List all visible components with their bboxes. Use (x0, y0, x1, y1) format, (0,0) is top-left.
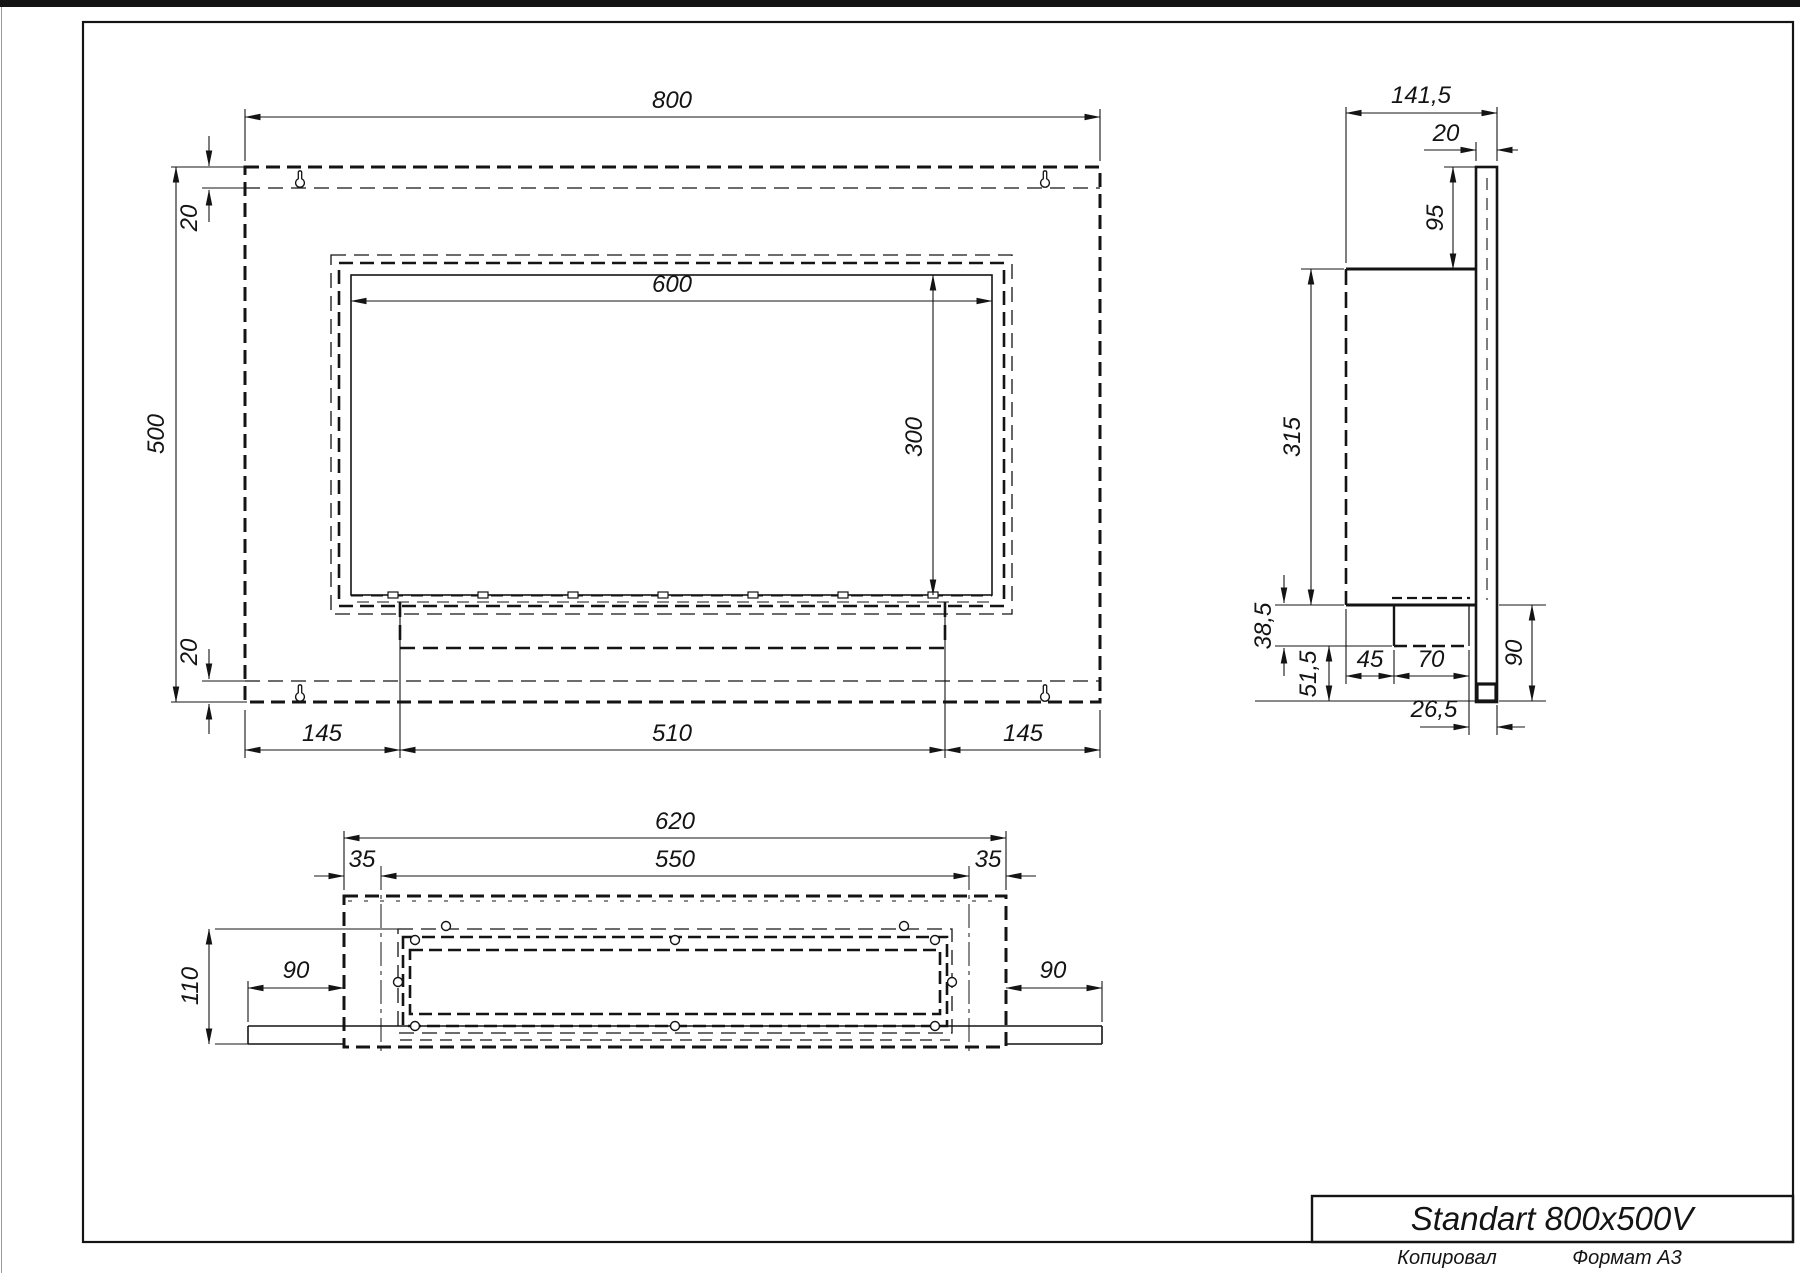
front-opening (351, 275, 992, 595)
dim-bottom-depth: 110 (177, 966, 204, 1005)
mounting-hole (671, 1022, 680, 1031)
dim-body-height: 315 (1279, 416, 1306, 457)
burner-slot (351, 592, 992, 602)
dim-back-offset: 26,5 (1410, 696, 1458, 723)
dim-front-offset: 45 (1357, 646, 1384, 673)
mounting-hole (394, 978, 403, 987)
dim-inset-right: 35 (975, 846, 1002, 873)
flange-left (248, 1026, 344, 1044)
footer-format-label: Формат А3 (1572, 1247, 1681, 1269)
dim-slot-width: 510 (652, 720, 693, 747)
mounting-hole (900, 922, 909, 931)
drawing-sheet: 800 500 20 20 600 300 145 510 145 (0, 0, 1800, 1273)
front-backplate-outline (245, 167, 1100, 702)
keyhole-icon (296, 685, 305, 701)
page-border (0, 0, 1800, 1273)
dim-side-depth: 141,5 (1391, 82, 1452, 109)
dim-front-height: 500 (143, 413, 170, 454)
title-block: Standart 800x500V (1312, 1196, 1793, 1242)
dim-opening-height: 300 (901, 416, 928, 457)
bottom-dimensions: 620 550 35 35 110 90 90 (177, 808, 1102, 1044)
mounting-hole (931, 936, 940, 945)
drawing-frame (83, 22, 1793, 1242)
dim-front-top-offset: 20 (176, 204, 203, 232)
burner-box (1394, 605, 1469, 646)
dim-under-body: 38,5 (1250, 602, 1277, 649)
flange-right (1006, 1026, 1102, 1044)
side-view: 141,5 20 95 315 38,5 51,5 45 (1250, 82, 1546, 735)
mounting-hole (948, 978, 957, 987)
dim-top-to-opening: 95 (1422, 204, 1449, 231)
dim-bottom-inner-width: 550 (655, 846, 696, 873)
sheet-footer: Копировал Формат А3 (1397, 1247, 1681, 1269)
dim-lower-gap: 51,5 (1295, 650, 1322, 697)
plate-foot (1477, 684, 1496, 701)
dim-plate-drop: 90 (1501, 639, 1528, 666)
dim-plate-thickness: 20 (1432, 120, 1460, 147)
mounting-hole (442, 922, 451, 931)
dim-front-bottom-offset: 20 (176, 638, 203, 666)
mounting-hole (411, 936, 420, 945)
model-name: Standart 800x500V (1411, 1200, 1697, 1237)
side-dimensions: 141,5 20 95 315 38,5 51,5 45 (1250, 82, 1546, 735)
bottom-view: 620 550 35 35 110 90 90 (177, 808, 1102, 1054)
keyhole-icon (1041, 171, 1050, 187)
mounting-hole (931, 1022, 940, 1031)
dim-margin-right: 145 (1003, 720, 1044, 747)
footer-copied-label: Копировал (1397, 1247, 1496, 1269)
keyhole-icon (296, 171, 305, 187)
dim-opening-width: 600 (652, 271, 693, 298)
front-view: 800 500 20 20 600 300 145 510 145 (143, 87, 1100, 758)
dim-flange-left: 90 (283, 957, 310, 984)
mounting-hole (671, 936, 680, 945)
dim-front-width: 800 (652, 87, 693, 114)
dim-flange-right: 90 (1040, 957, 1067, 984)
dim-bottom-outer-width: 620 (655, 808, 696, 835)
keyhole-icon (1041, 685, 1050, 701)
dim-burner-width: 70 (1418, 646, 1445, 673)
dim-margin-left: 145 (302, 720, 343, 747)
mounting-hole (411, 1022, 420, 1031)
dim-inset-left: 35 (349, 846, 376, 873)
